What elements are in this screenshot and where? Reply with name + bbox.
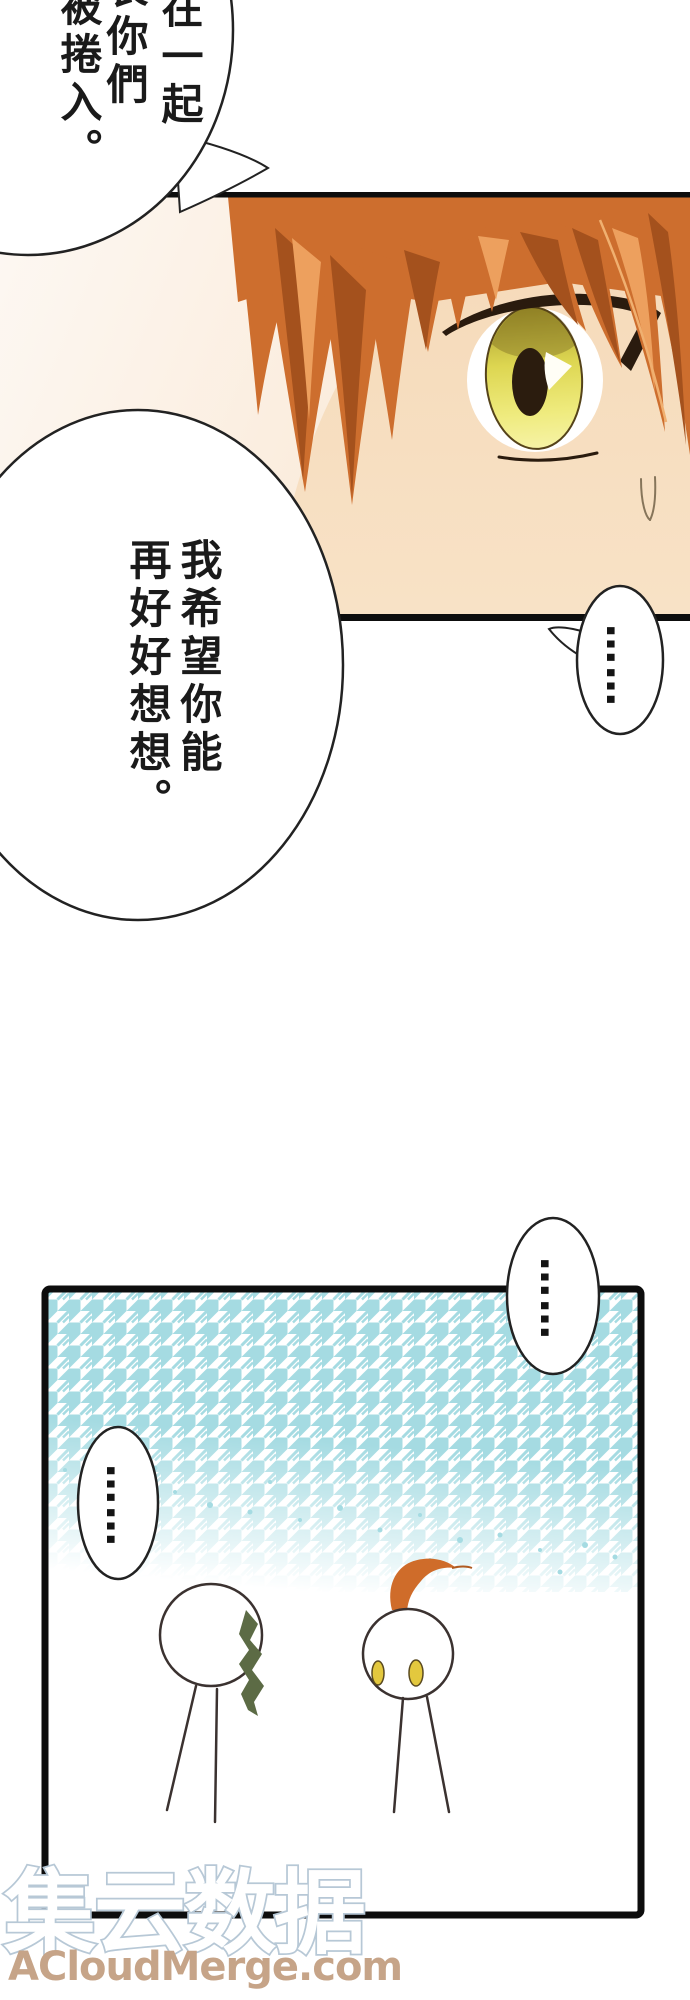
chibi-right-eye-left	[372, 1661, 384, 1685]
pupil	[512, 348, 548, 416]
chibi-right-eye-right	[409, 1660, 423, 1686]
top-bubble-text-col-3: 被捲入。	[56, 0, 100, 176]
main-bubble-text-col-2: 再好好想想。	[125, 538, 169, 826]
top-bubble-text-col-2: 表你們	[102, 0, 146, 110]
left-ellipsis-text: ……	[100, 1452, 142, 1560]
face-ellipsis-text: ……	[600, 612, 642, 720]
chibi-right-head	[363, 1609, 453, 1699]
right-ellipsis-text: ……	[534, 1245, 576, 1353]
manga-artwork: 集云数据	[0, 0, 690, 2000]
manga-page: 集云数据 在一起 表你們 被捲入。 我希望你能 再好好想想。 …… …… …… …	[0, 0, 690, 2000]
main-bubble-text-col-1: 我希望你能	[176, 538, 220, 778]
top-bubble-text-col-1: 在一起	[157, 0, 201, 130]
watermark-url: ACloudMerge.com	[8, 1944, 402, 1990]
